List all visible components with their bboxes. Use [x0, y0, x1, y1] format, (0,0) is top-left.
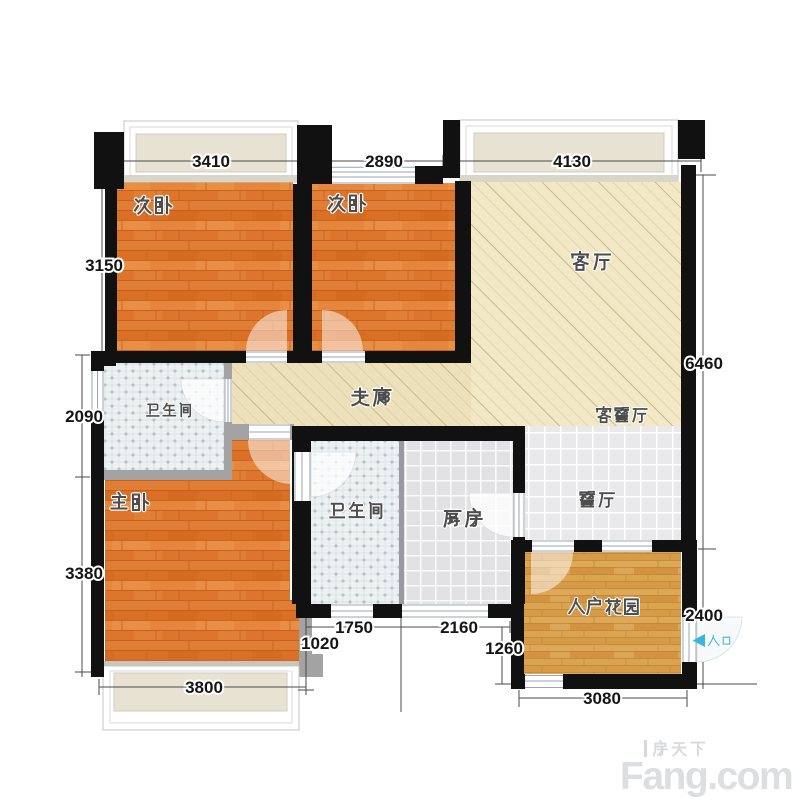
- svg-text:3800: 3800: [185, 678, 223, 697]
- svg-text:2890: 2890: [365, 152, 403, 171]
- svg-text:1020: 1020: [301, 634, 339, 653]
- svg-text:3410: 3410: [192, 152, 230, 171]
- svg-text:1750: 1750: [335, 618, 373, 637]
- svg-text:3080: 3080: [583, 689, 621, 708]
- svg-text:2090: 2090: [65, 407, 103, 426]
- svg-text:2160: 2160: [440, 618, 478, 637]
- svg-text:2400: 2400: [685, 606, 723, 625]
- svg-text:1260: 1260: [485, 639, 523, 658]
- svg-text:4130: 4130: [553, 152, 591, 171]
- svg-text:6460: 6460: [685, 354, 723, 373]
- svg-text:3380: 3380: [65, 564, 103, 583]
- svg-text:3150: 3150: [85, 256, 123, 275]
- svg-text:Fang.com: Fang.com: [620, 755, 792, 798]
